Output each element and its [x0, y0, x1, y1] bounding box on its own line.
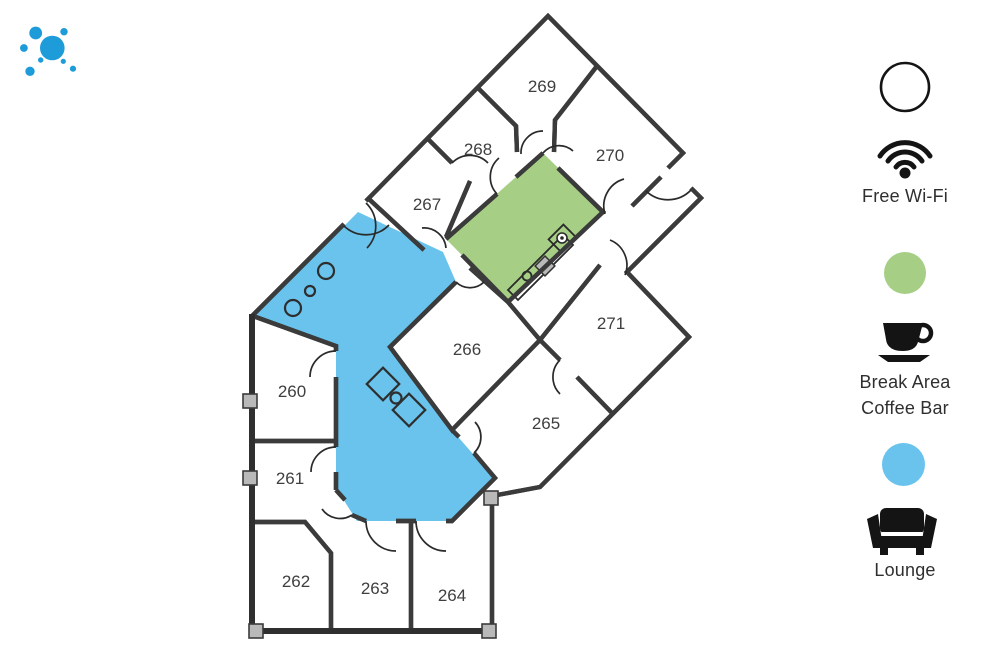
break-area-legend-dot	[884, 252, 926, 294]
room-label-265: 265	[532, 414, 560, 433]
break-area-label: Break Area Coffee Bar	[820, 369, 990, 421]
room-label-261: 261	[276, 469, 304, 488]
room-label-263: 263	[361, 579, 389, 598]
room-label-264: 264	[438, 586, 466, 605]
available-room-icon	[877, 59, 933, 115]
couch-icon	[864, 506, 940, 558]
break-area-label-line1: Break Area	[820, 369, 990, 395]
free-wifi-label: Free Wi-Fi	[820, 186, 990, 207]
facility-map-page: 260261262263264265266267268269270271 Fre…	[0, 0, 1000, 666]
room-label-267: 267	[413, 195, 441, 214]
room-label-270: 270	[596, 146, 624, 165]
coffee-cup-icon	[876, 316, 936, 366]
room-label-262: 262	[282, 572, 310, 591]
room-label-260: 260	[278, 382, 306, 401]
lounge-label: Lounge	[820, 560, 990, 581]
room-label-269: 269	[528, 77, 556, 96]
break-area-label-line2: Coffee Bar	[820, 395, 990, 421]
room-label-268: 268	[464, 140, 492, 159]
wifi-icon	[871, 124, 939, 182]
room-label-271: 271	[597, 314, 625, 333]
room-label-266: 266	[453, 340, 481, 359]
lounge-legend-dot	[882, 443, 925, 486]
